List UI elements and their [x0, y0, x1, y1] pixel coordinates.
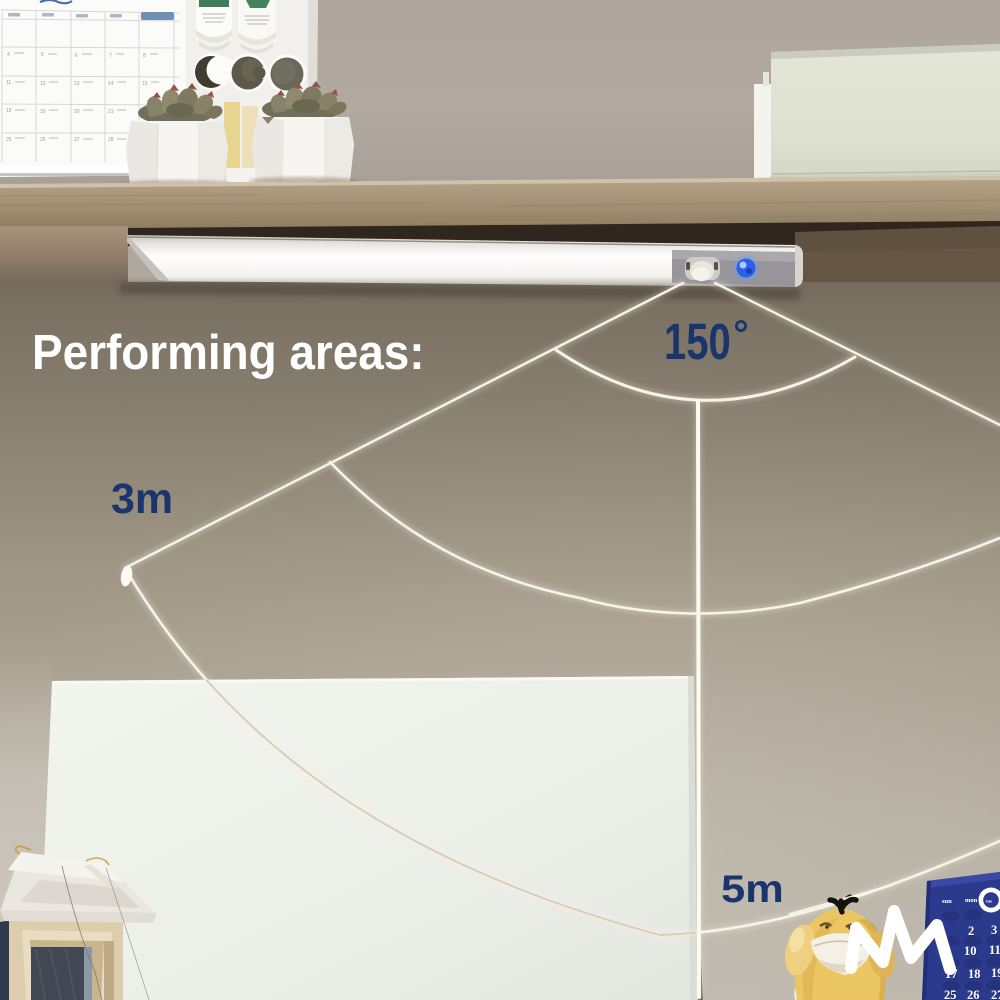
svg-text:18: 18 [968, 967, 981, 981]
svg-text:mon: mon [965, 897, 978, 904]
svg-text:6: 6 [75, 53, 78, 59]
svg-text:5m: 5m [721, 867, 784, 910]
svg-text:3m: 3m [111, 475, 173, 523]
svg-text:25: 25 [6, 137, 12, 143]
svg-text:13: 13 [74, 81, 80, 87]
svg-text:10: 10 [964, 944, 977, 958]
svg-text:11: 11 [6, 80, 11, 86]
svg-text:4: 4 [7, 52, 10, 58]
svg-text:27: 27 [74, 137, 80, 143]
svg-text:26: 26 [40, 137, 46, 143]
svg-text:15: 15 [142, 81, 148, 87]
svg-text:11: 11 [989, 943, 1000, 957]
svg-text:tue: tue [986, 899, 992, 904]
svg-text:28: 28 [108, 137, 114, 143]
svg-text:sun: sun [942, 898, 952, 905]
svg-text:19: 19 [40, 109, 46, 115]
svg-text:2: 2 [968, 924, 974, 938]
svg-text:21: 21 [108, 109, 114, 115]
svg-text:27: 27 [991, 988, 1000, 1000]
svg-text:18: 18 [6, 108, 12, 114]
svg-text:26: 26 [967, 988, 980, 1000]
svg-text:20: 20 [74, 109, 80, 115]
svg-text:3: 3 [991, 923, 997, 937]
svg-text:25: 25 [944, 988, 957, 1000]
svg-text:150: 150 [664, 314, 731, 371]
svg-text:7: 7 [109, 53, 112, 59]
svg-text:5: 5 [41, 52, 44, 58]
svg-text:19: 19 [991, 966, 1000, 980]
svg-text:12: 12 [40, 81, 46, 87]
svg-text:8: 8 [143, 53, 146, 59]
svg-text:Performing areas:: Performing areas: [32, 325, 425, 380]
svg-text:14: 14 [108, 81, 114, 87]
